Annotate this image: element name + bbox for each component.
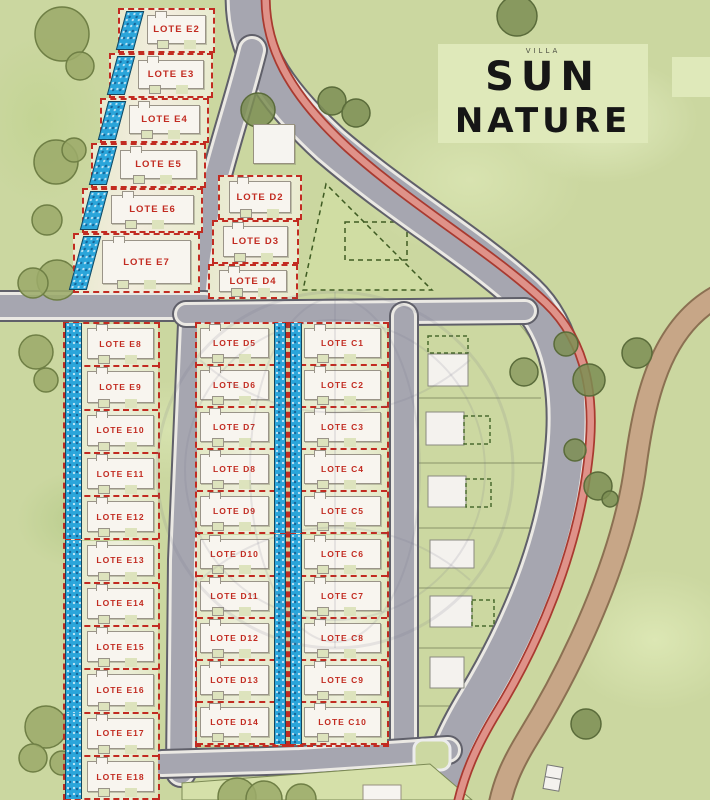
pool-strip (290, 576, 302, 618)
project-title-line1: SUN (485, 55, 601, 99)
lot[interactable]: LOTE E10 (65, 411, 158, 454)
pool-strip (65, 323, 82, 366)
house-plan: LOTE D6 (200, 370, 269, 400)
house-plan: LOTE E7 (102, 240, 191, 284)
lot-label: LOTE E18 (88, 762, 153, 791)
pool-strip (107, 56, 135, 95)
lot[interactable]: LOTE C9 (290, 661, 387, 703)
pool-strip (65, 626, 82, 669)
house-plan: LOTE E3 (138, 60, 204, 89)
pool-strip (290, 618, 302, 660)
pool-strip (274, 449, 286, 491)
lot[interactable]: LOTE E17 (65, 714, 158, 757)
house-plan: LOTE E8 (87, 328, 154, 359)
lot-label: LOTE D9 (201, 497, 268, 525)
house-plan: LOTE D2 (229, 181, 291, 213)
house-plan: LOTE E2 (147, 15, 206, 44)
house-plan: LOTE C9 (304, 665, 381, 695)
lot[interactable]: LOTE D10 (197, 535, 286, 577)
pool-strip (80, 191, 108, 230)
lot-label: LOTE C9 (305, 666, 380, 694)
lot-label: LOTE D11 (201, 582, 268, 610)
lot-label: LOTE E7 (103, 241, 190, 283)
house-unlabeled (253, 124, 295, 164)
lot-label: LOTE D14 (201, 708, 268, 736)
pool-strip (274, 407, 286, 449)
lot-label: LOTE E9 (88, 372, 153, 401)
lot[interactable]: LOTE D12 (197, 619, 286, 661)
lot-label: LOTE C5 (305, 497, 380, 525)
lot-label: LOTE E14 (88, 589, 153, 618)
house-plan: LOTE D11 (200, 581, 269, 611)
lot-label: LOTE E12 (88, 502, 153, 531)
lot[interactable]: LOTE C5 (290, 492, 387, 534)
pool-strip (274, 702, 286, 744)
house-plan: LOTE D8 (200, 454, 269, 484)
lot-label: LOTE D6 (201, 371, 268, 399)
lot-label: LOTE D10 (201, 540, 268, 568)
lot-label: LOTE D8 (201, 455, 268, 483)
lot[interactable]: LOTE D8 (197, 450, 286, 492)
house-plan: LOTE D10 (200, 539, 269, 569)
lot[interactable]: LOTE E15 (65, 627, 158, 670)
pool-strip (274, 365, 286, 407)
house-plan: LOTE C2 (304, 370, 381, 400)
lot-label: LOTE D3 (224, 227, 287, 256)
house-plan: LOTE C4 (304, 454, 381, 484)
pool-strip (274, 576, 286, 618)
house-plan: LOTE D14 (200, 707, 269, 737)
pool-strip (290, 660, 302, 702)
lot-label: LOTE E2 (148, 16, 205, 43)
house-plan: LOTE D5 (200, 328, 269, 358)
house-plan: LOTE E14 (87, 588, 154, 619)
house-plan: LOTE D12 (200, 623, 269, 653)
d-lots-column: LOTE D5 LOTE D6 LOTE D7 LOTE D8 (195, 322, 288, 747)
lot-label: LOTE D2 (230, 182, 290, 212)
lot-label: LOTE C10 (305, 708, 380, 736)
house-plan: LOTE E12 (87, 501, 154, 532)
lot-label: LOTE C2 (305, 371, 380, 399)
lot[interactable]: LOTE D14 (197, 703, 286, 745)
pool-strip (65, 540, 82, 583)
lot[interactable]: LOTE E8 (65, 324, 158, 367)
lot-label: LOTE C7 (305, 582, 380, 610)
lot-label: LOTE D13 (201, 666, 268, 694)
lot[interactable]: LOTE D7 (197, 408, 286, 450)
house-unlabeled (363, 785, 401, 800)
lot[interactable]: LOTE C4 (290, 450, 387, 492)
pool-strip (65, 713, 82, 756)
lot-label: LOTE E16 (88, 675, 153, 704)
house-plan: LOTE C7 (304, 581, 381, 611)
lot-e7[interactable]: LOTE E7 (73, 233, 200, 293)
lot-d2[interactable]: LOTE D2 (218, 175, 302, 220)
lot-label: LOTE E17 (88, 719, 153, 748)
lot[interactable]: LOTE E18 (65, 757, 158, 800)
lot-label: LOTE D5 (201, 329, 268, 357)
house-plan: LOTE E11 (87, 458, 154, 489)
c-lots-column: LOTE C1 LOTE C2 LOTE C3 LOTE C4 (288, 322, 389, 747)
pool-strip (65, 583, 82, 626)
lot[interactable]: LOTE C3 (290, 408, 387, 450)
lot-label: LOTE C8 (305, 624, 380, 652)
side-panel (672, 57, 710, 97)
house-plan: LOTE E18 (87, 761, 154, 792)
lot-label: LOTE E10 (88, 416, 153, 445)
house-plan: LOTE D9 (200, 496, 269, 526)
lot[interactable]: LOTE C10 (290, 703, 387, 745)
house-plan: LOTE C10 (304, 707, 381, 737)
house-plan: LOTE E9 (87, 371, 154, 402)
e-lots-column: LOTE E8 LOTE E9 LOTE E10 LOTE E1 (63, 322, 160, 800)
lot-label: LOTE E13 (88, 546, 153, 575)
lot[interactable]: LOTE C7 (290, 577, 387, 619)
house-plan: LOTE C1 (304, 328, 381, 358)
pool-strip (89, 146, 117, 185)
pool-strip (65, 756, 82, 799)
house-plan: LOTE E5 (120, 150, 197, 179)
pool-strip (65, 496, 82, 539)
pool-strip (65, 366, 82, 409)
lot[interactable]: LOTE E16 (65, 670, 158, 713)
title-small-label: VILLA (526, 47, 561, 55)
lot-label: LOTE D4 (220, 271, 286, 291)
lot[interactable]: LOTE E9 (65, 367, 158, 410)
lot-label: LOTE E6 (112, 196, 193, 223)
pool-strip (116, 11, 144, 50)
lot[interactable]: LOTE C2 (290, 366, 387, 408)
lot[interactable]: LOTE C8 (290, 619, 387, 661)
lot-label: LOTE C6 (305, 540, 380, 568)
pool-strip (65, 410, 82, 453)
house-plan: LOTE D7 (200, 412, 269, 442)
lot[interactable]: LOTE D6 (197, 366, 286, 408)
pool-strip (290, 702, 302, 744)
pool-strip (290, 365, 302, 407)
lot-label: LOTE D12 (201, 624, 268, 652)
pool-strip (274, 618, 286, 660)
pool-strip (290, 534, 302, 576)
house-plan: LOTE E4 (129, 105, 200, 134)
pool-strip (65, 669, 82, 712)
project-title-panel: VILLA SUN NATURE (438, 44, 648, 143)
house-plan: LOTE E13 (87, 545, 154, 576)
lot-e5[interactable]: LOTE E5 (91, 143, 206, 188)
house-plan: LOTE D13 (200, 665, 269, 695)
lot-d4[interactable]: LOTE D4 (208, 264, 298, 299)
lot-d3[interactable]: LOTE D3 (212, 220, 299, 264)
pool-strip (274, 534, 286, 576)
pool-strip (274, 323, 286, 365)
house-plan: LOTE E17 (87, 718, 154, 749)
lot[interactable]: LOTE C1 (290, 324, 387, 366)
lot-label: LOTE E5 (121, 151, 196, 178)
lot[interactable]: LOTE D13 (197, 661, 286, 703)
pool-strip (290, 407, 302, 449)
house-plan: LOTE C8 (304, 623, 381, 653)
pool-strip (65, 453, 82, 496)
lot[interactable]: LOTE C6 (290, 535, 387, 577)
house-plan: LOTE C6 (304, 539, 381, 569)
lot-label: LOTE E15 (88, 632, 153, 661)
lot[interactable]: LOTE E14 (65, 584, 158, 627)
lot-label: LOTE D7 (201, 413, 268, 441)
site-plan: LOTE E2 LOTE E3 LOTE E4 LOTE E5 LOTE E6 … (0, 0, 710, 800)
lot-label: LOTE E11 (88, 459, 153, 488)
pool-strip (274, 491, 286, 533)
lot[interactable]: LOTE D11 (197, 577, 286, 619)
pool-strip (274, 660, 286, 702)
house-plan: LOTE E15 (87, 631, 154, 662)
house-plan: LOTE D4 (219, 270, 287, 292)
house-plan: LOTE E16 (87, 674, 154, 705)
lot-label: LOTE C3 (305, 413, 380, 441)
pool-strip (290, 491, 302, 533)
pool-strip (290, 323, 302, 365)
lot-e2[interactable]: LOTE E2 (118, 8, 215, 53)
lot-label: LOTE C1 (305, 329, 380, 357)
lot-label: LOTE E4 (130, 106, 199, 133)
house-plan: LOTE E6 (111, 195, 194, 224)
house-plan: LOTE D3 (223, 226, 288, 257)
lot-label: LOTE E3 (139, 61, 203, 88)
pool-strip (98, 101, 126, 140)
lot-label: LOTE E8 (88, 329, 153, 358)
lot[interactable]: LOTE E12 (65, 497, 158, 540)
lot[interactable]: LOTE D5 (197, 324, 286, 366)
lot[interactable]: LOTE E13 (65, 541, 158, 584)
pool-strip (290, 449, 302, 491)
pool-strip (69, 236, 101, 290)
house-plan: LOTE E10 (87, 415, 154, 446)
lot-e4[interactable]: LOTE E4 (100, 98, 209, 143)
shed (543, 765, 563, 791)
lot[interactable]: LOTE E11 (65, 454, 158, 497)
lot-label: LOTE C4 (305, 455, 380, 483)
lot-e6[interactable]: LOTE E6 (82, 188, 203, 233)
project-title-line2: NATURE (455, 99, 631, 143)
lot-e3[interactable]: LOTE E3 (109, 53, 213, 98)
house-plan: LOTE C5 (304, 496, 381, 526)
lot[interactable]: LOTE D9 (197, 492, 286, 534)
house-plan: LOTE C3 (304, 412, 381, 442)
